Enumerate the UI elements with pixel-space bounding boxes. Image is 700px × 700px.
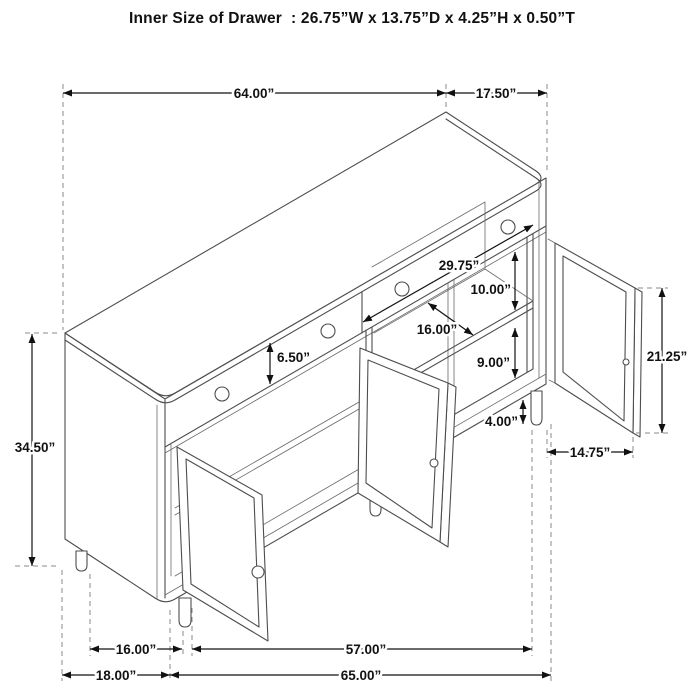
dim-leg-span-front: 57.00” (192, 642, 532, 657)
dim-leg-span-side: 16.00” (90, 642, 182, 657)
dim-lower-shelf-clearance-label: 9.00” (477, 355, 510, 370)
dim-top-width: 64.00” (63, 86, 446, 101)
dimension-diagram: 64.00” 17.50” 34.50” 29.75” 10.00” 16.00… (0, 0, 700, 700)
dim-door-opening-height-label: 21.25” (647, 349, 688, 364)
dim-door-width: 14.75” (547, 445, 633, 460)
dim-overall-height: 34.50” (15, 334, 56, 566)
dim-overall-depth-label: 18.00” (96, 668, 137, 683)
drawer-inner-size-title: Inner Size of Drawer : 26.75”W x 13.75”D… (129, 10, 575, 27)
dim-leg-clearance-label: 4.00” (485, 414, 518, 429)
dim-leg-span-side-label: 16.00” (116, 642, 157, 657)
drawer-knob (321, 324, 335, 338)
dim-top-width-label: 64.00” (234, 86, 275, 101)
leg-front-left (179, 598, 191, 627)
leg-rear-left (76, 551, 87, 571)
cabinet-drawing (65, 112, 642, 641)
right-door (548, 239, 642, 437)
leg-front-right (531, 391, 542, 425)
dim-overall-width: 65.00” (170, 668, 551, 683)
dim-overall-depth: 18.00” (62, 668, 170, 683)
dim-top-depth-label: 17.50” (476, 86, 517, 101)
drawer-knob (215, 387, 229, 401)
cabinet-dimension-drawing: 64.00” 17.50” 34.50” 29.75” 10.00” 16.00… (0, 0, 700, 700)
cane-door-knob (252, 566, 264, 578)
dim-drawer-front-height-label: 6.50” (277, 350, 310, 365)
dim-overall-height-label: 34.50” (15, 440, 56, 455)
drawer-knob (395, 282, 409, 296)
dim-shelf-depth-label: 16.00” (417, 322, 458, 337)
dim-door-opening-height: 21.25” (647, 288, 688, 433)
dim-overall-width-label: 65.00” (341, 668, 382, 683)
drawer-knob (501, 220, 515, 234)
middle-door-knob (430, 459, 438, 467)
dim-top-depth: 17.50” (446, 86, 547, 101)
dim-door-width-label: 14.75” (570, 445, 611, 460)
dim-upper-shelf-clearance-label: 10.00” (470, 282, 511, 297)
right-door-knob (623, 359, 629, 365)
dim-inner-section-width-label: 29.75” (439, 258, 480, 273)
dim-leg-span-front-label: 57.00” (346, 642, 387, 657)
